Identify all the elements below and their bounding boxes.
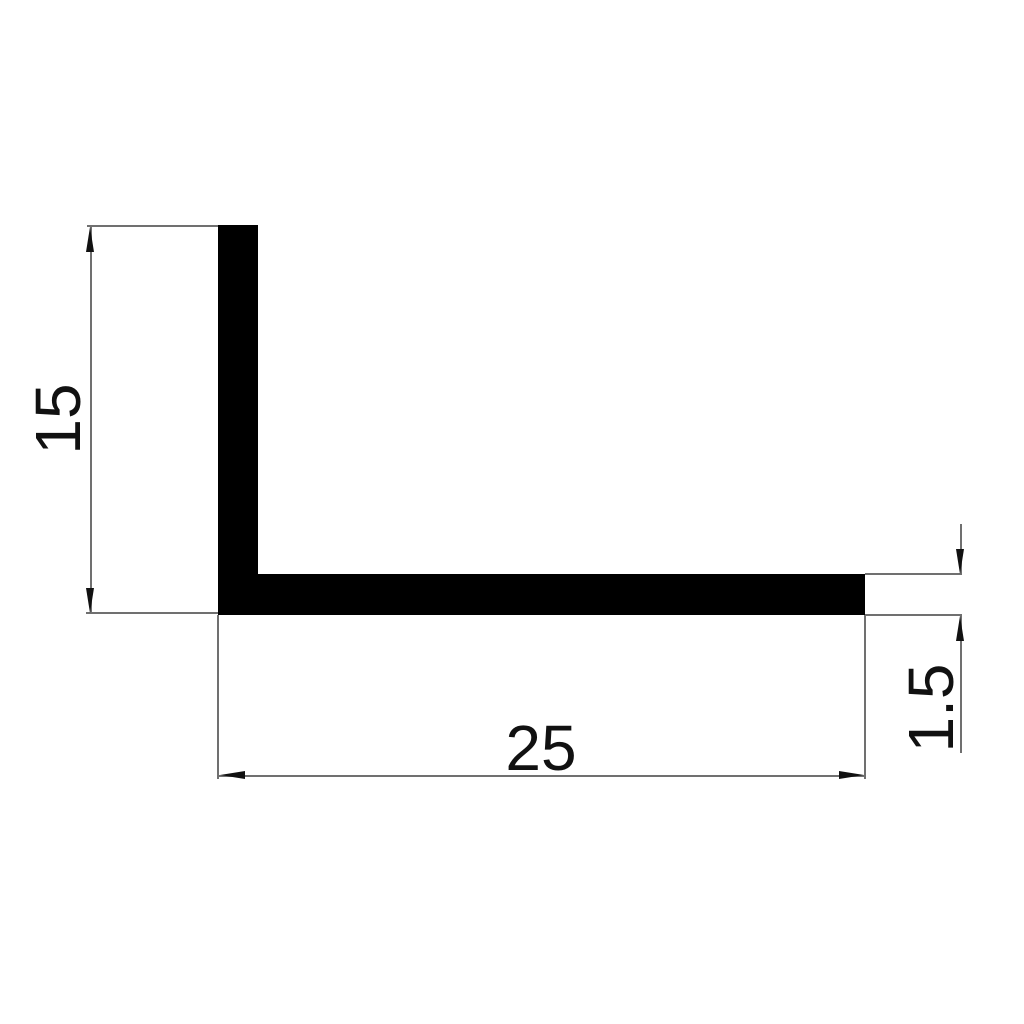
width-dimension-label: 25 <box>505 716 576 780</box>
arrow-left-icon <box>220 771 245 779</box>
arrow-down-icon <box>956 549 964 574</box>
arrow-up-icon <box>86 227 94 252</box>
width-extension-line-left <box>217 615 219 779</box>
height-extension-line-bottom <box>86 612 218 614</box>
height-extension-line-top <box>87 225 218 227</box>
arrow-down-icon <box>86 588 94 613</box>
thickness-dimension-label: 1.5 <box>899 664 963 753</box>
technical-drawing-canvas: 15 25 1.5 <box>0 0 1024 1024</box>
profile-vertical-leg <box>218 225 258 615</box>
width-extension-line-right <box>864 615 866 779</box>
thickness-extension-line-top <box>865 573 962 575</box>
arrow-up-icon <box>956 616 964 641</box>
height-dimension-label: 15 <box>26 383 90 454</box>
arrow-right-icon <box>839 771 864 779</box>
thickness-extension-line-bottom <box>865 614 962 616</box>
profile-horizontal-leg <box>218 574 865 615</box>
